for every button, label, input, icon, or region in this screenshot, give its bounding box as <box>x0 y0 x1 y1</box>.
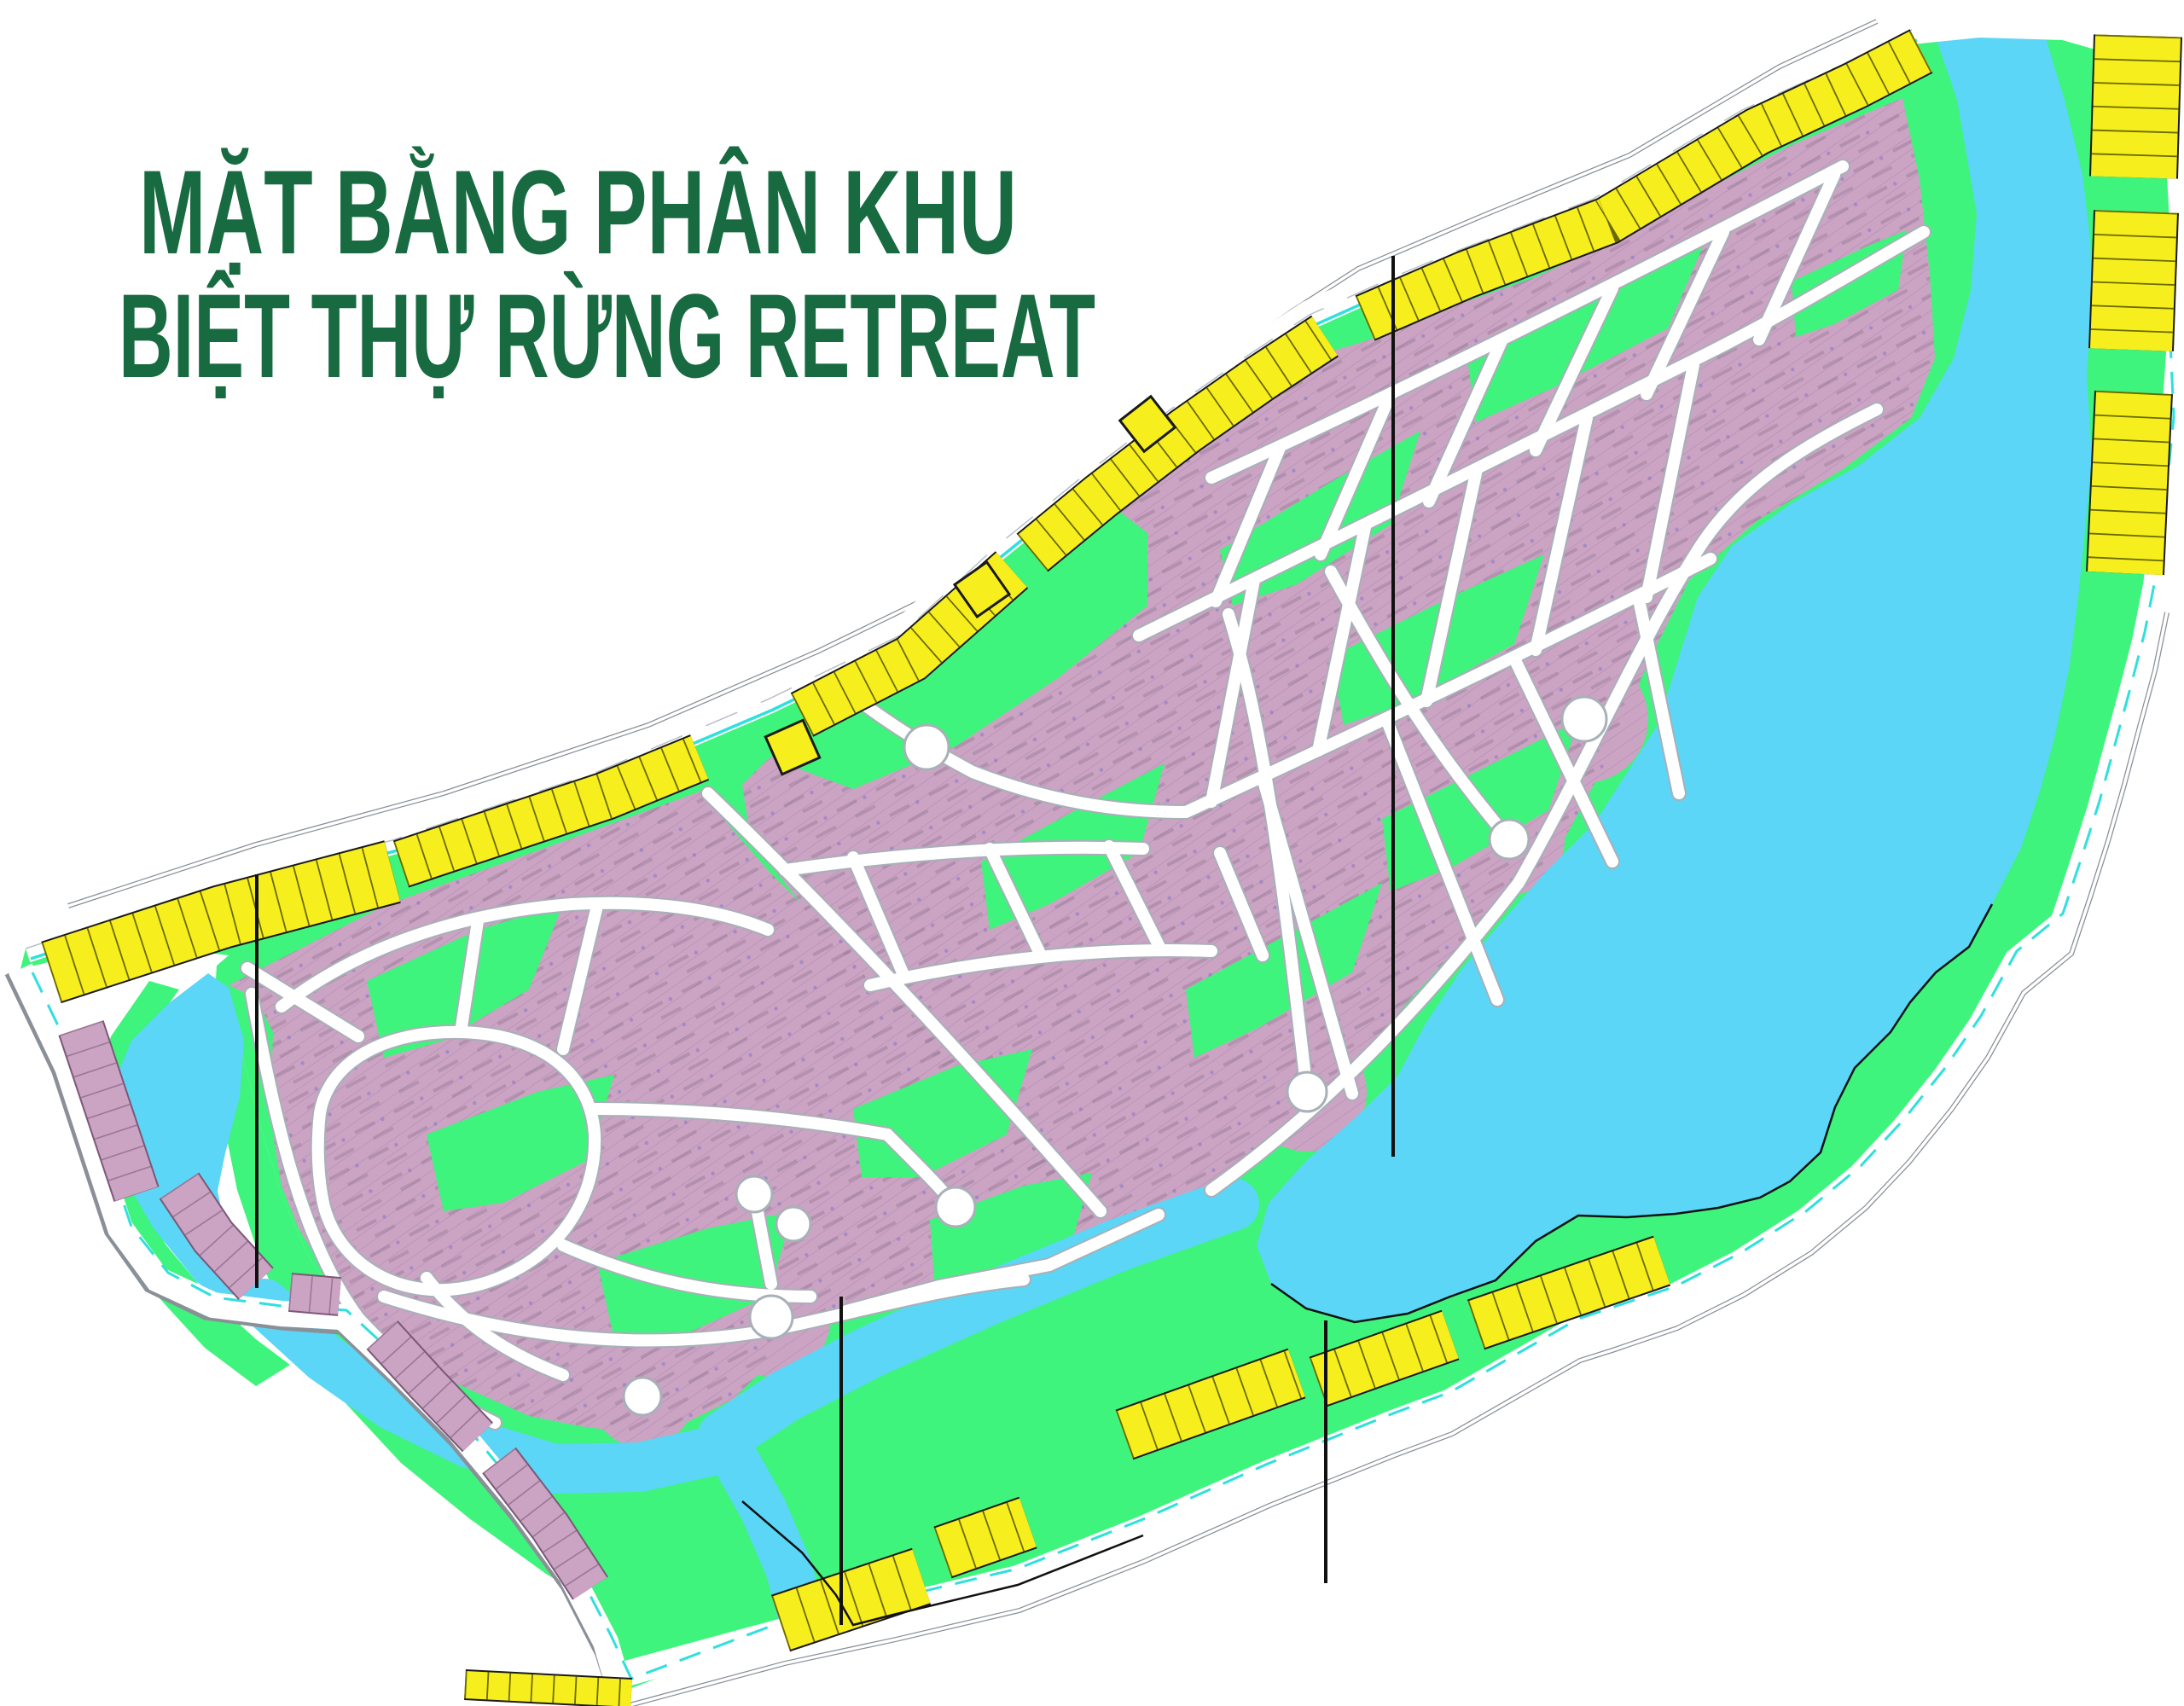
svg-text:MẶT BẰNG PHÂN KHU: MẶT BẰNG PHÂN KHU <box>139 145 1017 279</box>
svg-text:BIỆT THỰ RỪNG RETREAT: BIỆT THỰ RỪNG RETREAT <box>119 269 1095 403</box>
